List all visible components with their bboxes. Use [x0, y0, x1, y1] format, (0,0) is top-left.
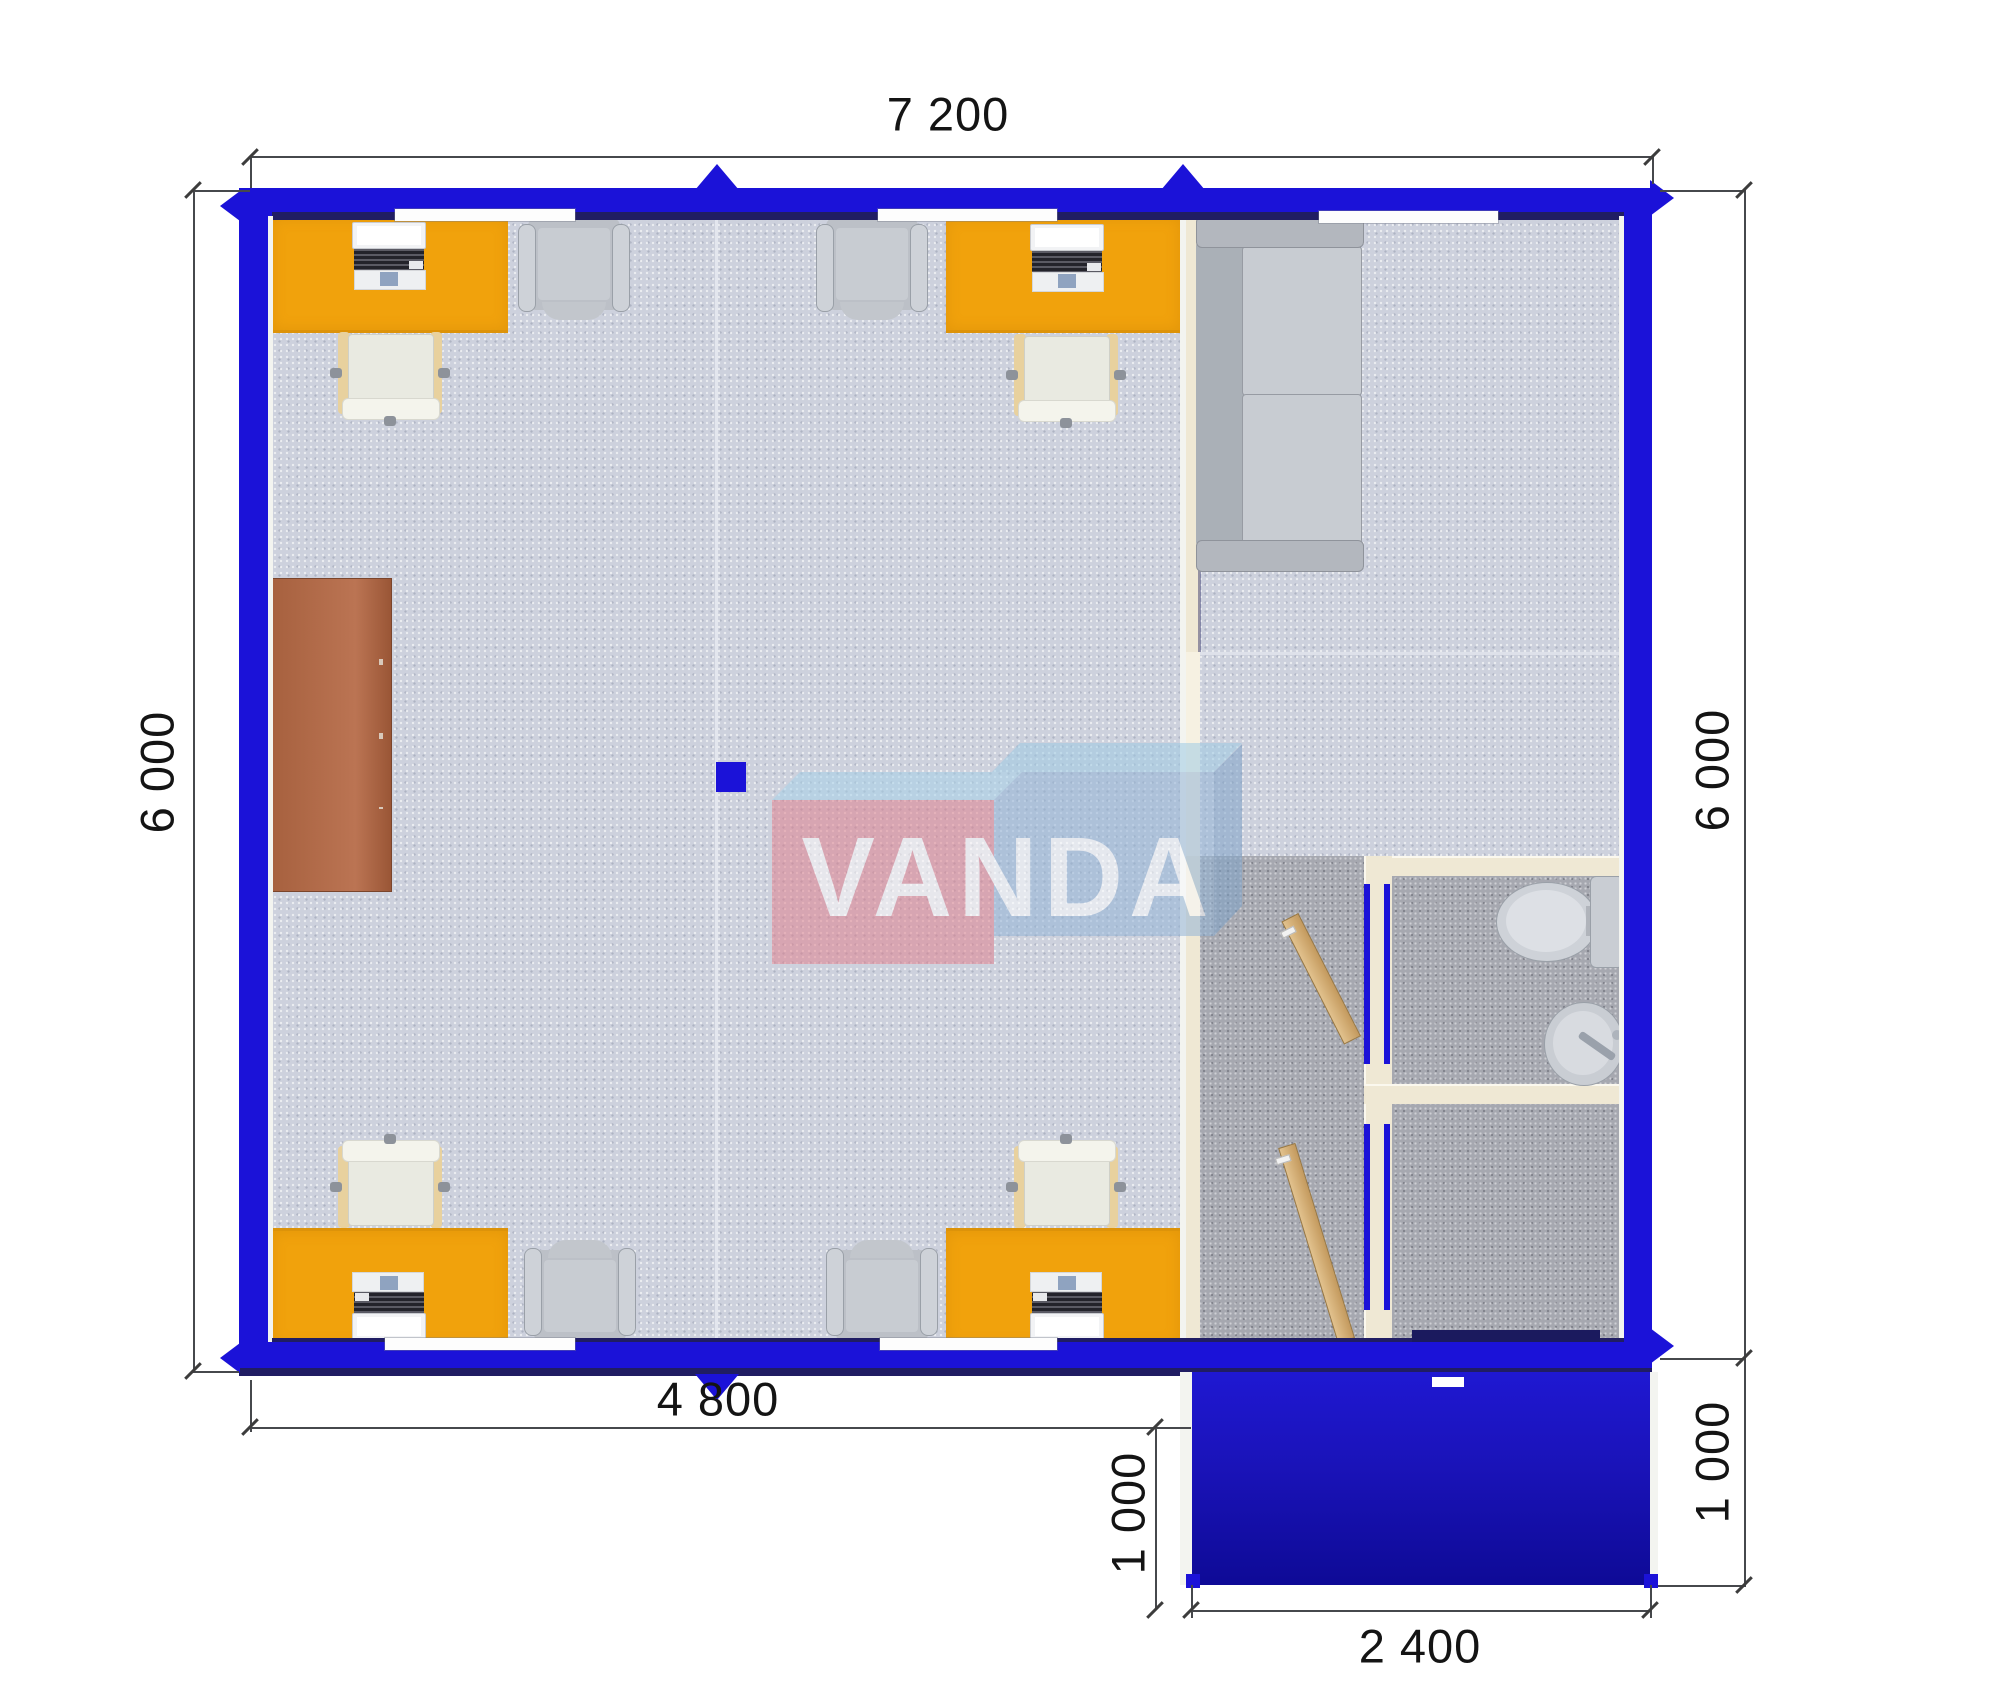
wc-doorframe-upper — [1384, 884, 1390, 1064]
desk-chair-bottom-right — [1010, 1140, 1122, 1228]
window-top-3 — [1319, 211, 1498, 223]
laptop-bottom-left — [352, 1272, 426, 1340]
dim-ext — [1652, 156, 1654, 184]
dim-ext — [193, 190, 250, 192]
floor-marker — [716, 762, 746, 792]
dim-line-porch-bottom — [1191, 1610, 1650, 1612]
entrance-door-recess — [1412, 1330, 1600, 1342]
dim-ext — [1660, 190, 1746, 192]
wall-right — [1624, 188, 1652, 1374]
wc-doorframe-lower — [1364, 1124, 1370, 1310]
dim-label-bottom-left: 4 800 — [657, 1376, 780, 1423]
armchair-top-1 — [518, 218, 630, 316]
porch-foot-left — [1186, 1574, 1200, 1588]
dim-line-right — [1744, 190, 1746, 1358]
porch-edge-right — [1650, 1372, 1658, 1585]
laptop-bottom-right — [1030, 1272, 1104, 1340]
dim-ext — [250, 156, 252, 188]
desk-chair-top-right — [1010, 334, 1122, 422]
dim-line-porch-left — [1155, 1427, 1157, 1610]
window-bottom-1 — [385, 1338, 575, 1350]
dim-label-porch-bottom: 2 400 — [1359, 1623, 1482, 1670]
armchair-bottom-2 — [826, 1244, 938, 1342]
joint-arrow-icon — [695, 164, 739, 190]
joint-arrow-icon — [220, 191, 240, 221]
dim-label-right: 6 000 — [1689, 709, 1736, 832]
dim-line-porch-right — [1744, 1358, 1746, 1585]
dim-label-porch-left: 1 000 — [1105, 1452, 1152, 1575]
dim-line-left — [193, 190, 195, 1372]
dim-label-top: 7 200 — [887, 91, 1010, 138]
wc-doorframe-lower — [1384, 1124, 1390, 1310]
toilet — [1494, 876, 1624, 966]
floor-plan-canvas: 7 200 6 000 6 000 4 800 1 000 1 000 2 40… — [0, 0, 2000, 1682]
window-top-2 — [878, 209, 1057, 221]
armchair-top-2 — [816, 218, 928, 316]
entrance-porch — [1192, 1372, 1650, 1585]
dim-label-left: 6 000 — [134, 711, 181, 834]
dim-ext — [1650, 1585, 1652, 1618]
window-bottom-2 — [880, 1338, 1057, 1350]
sofa — [1196, 216, 1362, 572]
dim-ext — [1660, 1358, 1746, 1360]
joint-arrow-icon — [220, 1343, 240, 1373]
laptop-top-left — [352, 222, 426, 290]
wc-wall-mid — [1364, 1084, 1624, 1104]
porch-door-mark — [1432, 1377, 1464, 1387]
window-top-1 — [395, 209, 575, 221]
module-seam — [1198, 652, 1624, 655]
desk-chair-top-left — [334, 332, 446, 420]
dim-label-porch-right: 1 000 — [1689, 1401, 1736, 1524]
joint-arrow-icon — [1161, 164, 1205, 190]
joint-arrow-icon — [1650, 180, 1674, 216]
brand-watermark: VANDA — [758, 736, 1258, 976]
dim-line-bottom-left — [250, 1427, 1191, 1429]
wc-doorframe-upper — [1364, 884, 1370, 1064]
dim-line-top — [250, 156, 1653, 158]
laptop-top-right — [1030, 224, 1104, 292]
wall-left-inner-edge — [268, 216, 273, 1342]
porch-edge-left — [1180, 1372, 1192, 1585]
dim-ext — [1191, 1585, 1193, 1618]
dim-ext — [193, 1371, 239, 1373]
sink — [1544, 1002, 1624, 1086]
wc-wall-top — [1364, 856, 1624, 876]
desk-chair-bottom-left — [334, 1140, 446, 1228]
dim-ext — [1658, 1585, 1746, 1587]
cabinet — [272, 578, 392, 892]
armchair-bottom-1 — [524, 1244, 636, 1342]
brand-name: VANDA — [758, 812, 1258, 943]
